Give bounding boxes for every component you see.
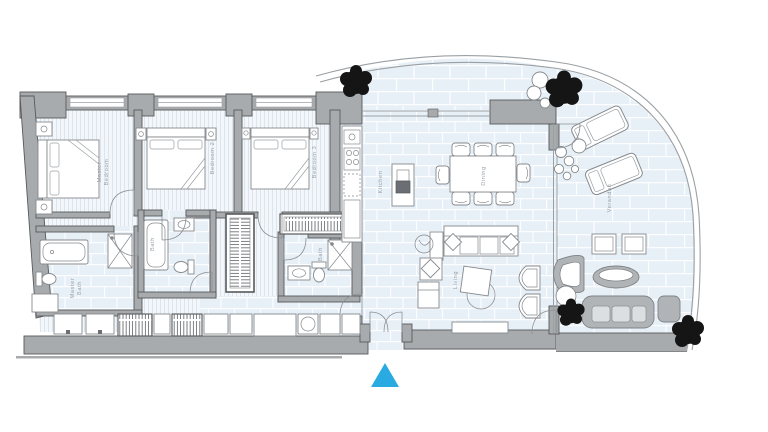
coffee-table [460, 266, 491, 296]
sink-2 [174, 218, 194, 231]
shower-3 [328, 240, 352, 270]
label-bath-3: Bath [318, 247, 324, 261]
chaise [418, 282, 439, 308]
outdoor-sofa [582, 296, 654, 328]
toilet-3 [312, 262, 326, 282]
label-living: Living [453, 271, 459, 289]
toilet-2 [174, 260, 194, 274]
wardrobe [226, 214, 254, 292]
window [70, 98, 312, 107]
ottoman [658, 296, 680, 322]
floor-plan-page: Master Bedroom Bedroom 2 Bedroom 3 Maste… [0, 0, 768, 432]
sofa [444, 226, 519, 256]
label-master-bedroom: Master [97, 162, 103, 183]
entrance-marker-icon [371, 363, 399, 387]
side-stool [572, 139, 586, 153]
bathtub-2 [144, 220, 168, 270]
sink-3 [288, 266, 310, 280]
console-table [430, 232, 443, 260]
bed-3 [251, 128, 309, 189]
floor-plan-canvas: Master Bedroom Bedroom 2 Bedroom 3 Maste… [0, 0, 768, 432]
label-kitchen: Kitchen [378, 171, 384, 194]
master-bathtub [40, 240, 88, 264]
label-master-bath: Master [70, 278, 76, 299]
bed-2 [147, 128, 205, 189]
label-verandah: Verandah [607, 184, 613, 213]
master-toilet [36, 272, 56, 286]
tv-console [452, 322, 508, 333]
master-bed [38, 140, 99, 198]
master-shower [108, 234, 132, 268]
label-dining: Dining [481, 166, 487, 185]
svg-text:Bath: Bath [77, 281, 83, 295]
closet [280, 214, 348, 234]
label-bedroom-2: Bedroom 2 [210, 142, 216, 175]
kitchen-counter [342, 126, 362, 242]
label-bath-2: Bath [150, 237, 156, 251]
label-bedroom-3: Bedroom 3 [312, 146, 318, 179]
armchair [420, 258, 442, 280]
kitchen-island [392, 164, 414, 206]
outdoor-coffee-table [593, 266, 639, 288]
svg-text:Bedroom: Bedroom [104, 159, 110, 186]
wall-ledge [16, 356, 342, 359]
